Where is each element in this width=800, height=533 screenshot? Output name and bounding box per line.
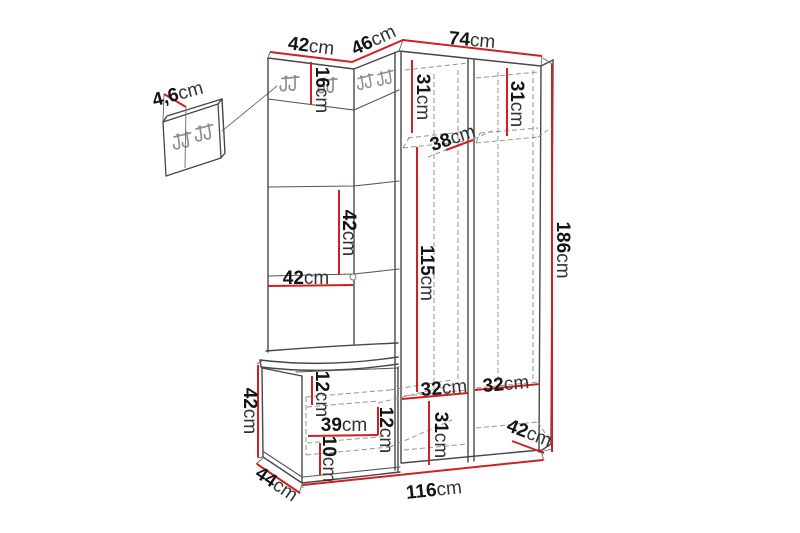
- label-right-compartment-width: 32cm: [482, 372, 530, 397]
- dimension-labels: 4,6cm 42cm 46cm 74cm 16cm 31cm 31cm 38cm…: [150, 21, 573, 506]
- panel-seam: [268, 181, 399, 187]
- furniture-dimension-diagram: 4,6cm 42cm 46cm 74cm 16cm 31cm 31cm 38cm…: [0, 0, 800, 533]
- label-left-compartment-top: 31cm: [412, 74, 433, 120]
- hidden-edge: [538, 130, 548, 137]
- label-middle-panel-height: 42cm: [338, 210, 359, 256]
- label-left-compartment-bottom: 31cm: [430, 412, 451, 458]
- extension-line: [257, 457, 263, 458]
- hidden-shelf-edge: [480, 128, 538, 133]
- label-bench-depth: 44cm: [251, 463, 301, 506]
- coat-hook-icon: [356, 73, 375, 90]
- wardrobe-bottom-edge: [402, 450, 540, 463]
- hidden-edge: [403, 136, 410, 148]
- label-compartment-middle-height: 115cm: [416, 245, 437, 301]
- label-bench-inner-width: 39cm: [321, 415, 367, 436]
- extension-line: [268, 52, 270, 58]
- label-hook-panel-height: 16cm: [311, 67, 332, 113]
- coat-hook-icon: [280, 75, 299, 91]
- bench-seat-front-top: [260, 357, 398, 363]
- diagram-page: 4,6cm 42cm 46cm 74cm 16cm 31cm 31cm 38cm…: [0, 0, 800, 533]
- bench: [260, 343, 452, 483]
- label-wardrobe-width: 74cm: [448, 28, 496, 53]
- bench-front-bottom-edge: [302, 472, 400, 483]
- label-right-compartment-top: 31cm: [506, 81, 527, 127]
- label-bench-height: 42cm: [239, 388, 260, 434]
- hidden-shelf-edge: [476, 137, 538, 143]
- connector-dot: [350, 274, 356, 280]
- extension-line: [541, 56, 542, 66]
- extension-line: [302, 483, 303, 488]
- label-middle-panel-width: 42cm: [283, 268, 329, 289]
- hidden-edge: [405, 63, 468, 70]
- label-total-height: 186cm: [552, 221, 573, 278]
- leader-line: [222, 86, 277, 131]
- bench-seat-front-bottom: [261, 364, 398, 370]
- label-total-width: 116cm: [405, 477, 463, 504]
- label-left-compartment-width: 32cm: [420, 376, 468, 401]
- label-bench-top-height: 12cm: [311, 371, 332, 417]
- hook-panel-seam: [268, 90, 399, 110]
- bench-seat-back-seam: [266, 343, 398, 351]
- bench-seat-left-cap: [260, 360, 261, 367]
- label-wardrobe-depth: 42cm: [504, 415, 555, 451]
- label-bench-shelf-height: 12cm: [375, 407, 396, 453]
- right-front-edge: [539, 66, 541, 452]
- extension-line: [257, 361, 262, 364]
- label-shelf-depth: 38cm: [427, 121, 478, 156]
- label-bench-plinth-height: 10cm: [318, 436, 339, 482]
- bench-left-edge: [262, 368, 263, 457]
- coat-hook-icon: [376, 69, 395, 86]
